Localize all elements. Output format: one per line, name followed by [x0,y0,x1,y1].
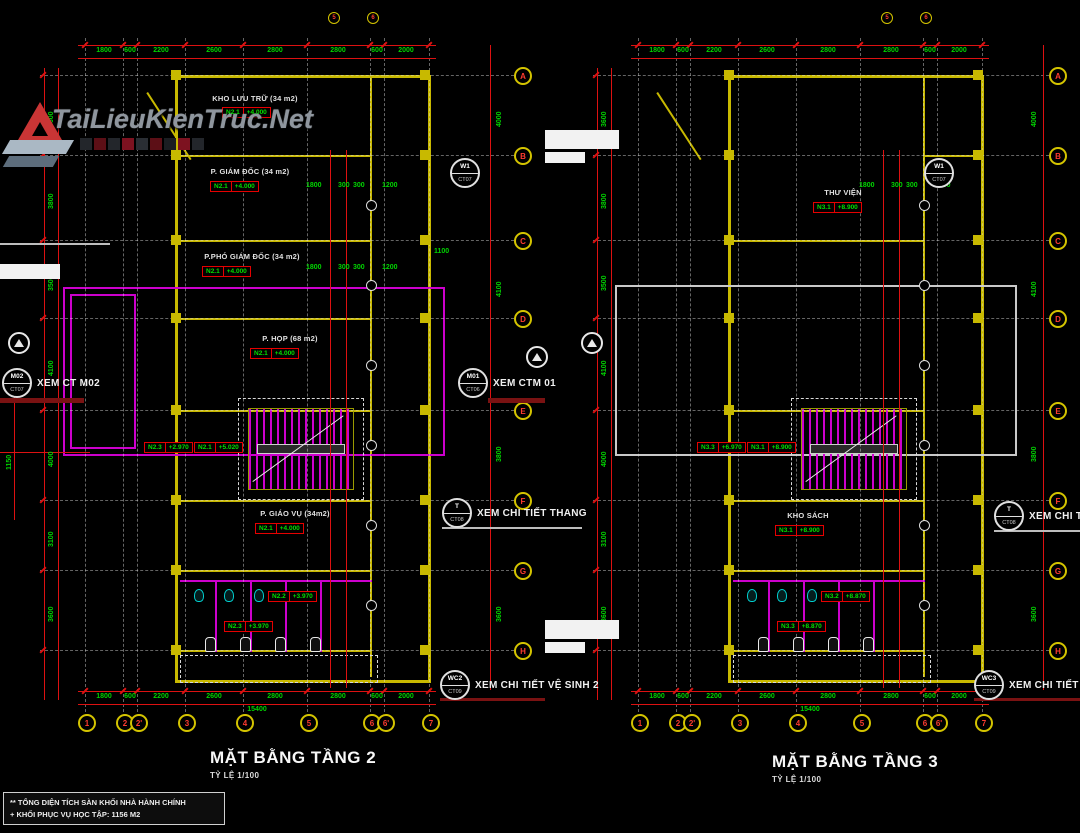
column-section [171,70,181,80]
grid-bubble-col: 2' [130,714,148,732]
watermark-logo-hole [32,122,48,136]
elevation-tag: N2.1+4.000 [210,181,259,192]
grid-bubble-col: 7 [975,714,993,732]
dim-line [78,45,436,46]
grid-line [40,570,514,571]
callout-stair-detail: T CT08 XEM CHI TIẾT THANG [442,498,587,528]
dim-label: 2800 [816,47,840,54]
dim-label: 1200 [382,182,398,189]
detail-tag-top: W1 [452,160,478,174]
dim-label: 3800 [601,193,608,209]
door-tag-icon [366,440,377,451]
column-section [420,565,430,575]
grid-line [307,38,308,712]
grid-line [40,240,514,241]
grid-bubble-row: C [1049,232,1067,250]
column-section [420,405,430,415]
plan-scale: TỶ LỆ 1/100 [772,775,938,784]
dim-line [631,691,989,692]
column-section [973,235,983,245]
watermark: TaiLieuKienTruc.Net [6,96,276,176]
door-tag-icon [919,600,930,611]
dim-line [1043,45,1044,690]
wc-elevation-tag: N2.2+3.970 [268,591,317,602]
stair-elevation-tag: N3.1+8.900 [747,442,796,453]
room-label-pho-giam-doc: P.PHÓ GIÁM ĐỐC (34 m2) [172,252,332,261]
dim-label: 3800 [48,193,55,209]
grid-bubble-col: 4 [236,714,254,732]
wc-elevation-tag: N2.3+3.970 [224,621,273,632]
staircase [248,408,354,490]
door-tag-icon [919,280,930,291]
grid-line [40,75,514,76]
column-section [724,70,734,80]
grid-bubble-row: A [1049,67,1067,85]
room-label-kho-sach: KHO SÁCH [748,511,868,520]
dim-line [899,150,900,688]
grid-bubble-col: 6' [377,714,395,732]
dim-label: 4100 [496,281,503,297]
callout-m02: M02 CT07 XEM CT M02 [2,368,100,398]
column-section [171,495,181,505]
callout-label: XEM CT M02 [37,378,100,389]
room-label-giao-vu: P. GIÁO VỤ (34m2) [230,509,360,518]
dim-label: 600 [118,693,142,700]
dim-label: 2800 [263,47,287,54]
dim-label: 1800 [306,264,322,271]
grid-bubble-row: G [514,562,532,580]
dim-label: 3800 [496,446,503,462]
grid-bubble-col: 5 [853,714,871,732]
dim-line [883,150,884,688]
room-label-thu-vien: THƯ VIỆN [788,188,898,197]
wc-partition [180,580,372,582]
toilet-icon [205,637,216,652]
urinal-icon [194,589,204,602]
callout-wc3: WC3 CT09 XEM CHI TIẾT VỆ SINH 3 [974,670,1080,700]
level-tag: N3.1 [748,443,768,452]
dim-label: 1100 [434,248,449,255]
elevation-tag: N2.1+4.000 [202,266,251,277]
grid-bubble-row: D [514,310,532,328]
section-marker [581,332,603,354]
section-marker [526,346,548,368]
dim-label: 2200 [149,693,173,700]
column-section [724,565,734,575]
staircase [801,408,907,490]
detail-tag-icon: M02 CT07 [2,368,32,398]
callout-stair-detail: T CT08 XEM CHI TIẾT THANG [994,501,1080,531]
room-label-hop: P. HỌP (68 m2) [225,334,355,343]
elevation-tag: N3.1+8.900 [813,202,862,213]
callout-label: XEM CHI TIẾT VỆ SINH 2 [475,680,599,691]
dim-line [78,704,436,705]
detail-tag-bottom: CT06 [460,384,486,396]
dim-label: 4100 [601,360,608,376]
grid-bubble-row: H [514,642,532,660]
dim-label: 4000 [496,111,503,127]
dim-label: 600 [118,47,142,54]
urinal-icon [747,589,757,602]
grid-line [690,38,691,712]
dim-label: 1800 [306,182,322,189]
dim-label: 3100 [48,531,55,547]
column-section [420,70,430,80]
note-line-2: + KHỐI PHỤC VỤ HỌC TẬP: 1156 M2 [10,809,218,821]
dim-line [631,45,989,46]
redaction-bar [545,642,585,653]
grid-bubble-row: E [514,402,532,420]
grid-bubble-row: C [514,232,532,250]
dim-label: 300 [353,182,365,189]
grid-line [40,410,514,411]
watermark-wedge [3,156,59,167]
dim-label: 2600 [202,47,226,54]
dim-label: 2200 [702,693,726,700]
dim-label: 4100 [1031,281,1038,297]
column-section [973,150,983,160]
level-tag: N3.2 [822,592,842,601]
level-tag: N2.1 [203,267,223,276]
door-tag-icon [366,600,377,611]
column-section [724,645,734,655]
elevation-value: +5.020 [215,443,242,452]
elevation-value: +8.900 [834,203,861,212]
grid-line [40,318,514,319]
column-section [171,565,181,575]
wc-elevation-tag: N3.3+8.870 [777,621,826,632]
detail-tag-top: M02 [4,370,30,384]
callout-label: XEM CHI TIẾT THANG [1029,511,1080,522]
grid-bubble-col: 3 [178,714,196,732]
column-section [171,645,181,655]
column-section [724,495,734,505]
detail-tag-bottom: CT07 [926,174,952,186]
door-tag-icon [919,520,930,531]
dim-label: 600 [918,47,942,54]
grid-bubble-row: B [1049,147,1067,165]
detail-tag-top: WC3 [976,672,1002,686]
grid-bubble-col: 3 [731,714,749,732]
dim-label: 2800 [879,693,903,700]
level-tag: N3.3 [778,622,798,631]
grid-bubble-col: 1 [78,714,96,732]
dim-label: 2800 [879,47,903,54]
dim-label: 4000 [601,451,608,467]
stair-elevation-tag: N3.3+6.970 [697,442,746,453]
grid-bubble-row: G [1049,562,1067,580]
detail-tag-top: WC2 [442,672,468,686]
level-tag: N3.3 [698,443,718,452]
grid-line [860,38,861,712]
detail-tag-bottom: CT08 [996,517,1022,529]
toilet-icon [828,637,839,652]
plan-title: MẶT BẰNG TẦNG 3 [772,752,938,772]
column-section [973,565,983,575]
elevation-tag: N2.1+4.000 [250,348,299,359]
dim-label: 600 [671,693,695,700]
dim-label: 2600 [202,693,226,700]
dim-label: 2000 [947,47,971,54]
canopy-dashed-outline [180,655,378,683]
grid-bubble-top: 6 [920,12,932,24]
area-note-box: ** TỔNG DIỆN TÍCH SÀN KHỐI NHÀ HÀNH CHÍN… [3,792,225,825]
grid-line [676,38,677,712]
elevation-tag: N2.1+4.000 [255,523,304,534]
elevation-tag: N3.1+8.900 [775,525,824,536]
door-tag-icon [919,440,930,451]
wc-elevation-tag: N3.2+8.870 [821,591,870,602]
redaction-bar [545,620,619,639]
elevation-value: +4.000 [276,524,303,533]
watermark-square [178,138,190,150]
dim-label: 2000 [394,693,418,700]
watermark-squares [80,138,204,150]
grid-line [796,38,797,712]
grid-bubble-col: 4 [789,714,807,732]
stair-elevation-tag: N2.1+5.020 [194,442,243,453]
dim-line [611,68,612,700]
watermark-square [94,138,106,150]
dim-label: 1200 [382,264,398,271]
column-section [171,235,181,245]
watermark-square [136,138,148,150]
dim-label: 2800 [263,693,287,700]
dim-total: 15400 [788,706,832,713]
grid-bubble-row: D [1049,310,1067,328]
level-tag: N2.1 [251,349,271,358]
door-tag-icon [366,520,377,531]
detail-tag-bottom: CT08 [444,514,470,526]
dim-label: 300 [353,264,365,271]
dim-label: 1800 [645,47,669,54]
redaction-bar [545,152,585,163]
dim-label: 600 [365,47,389,54]
elevation-value: +4.000 [231,182,258,191]
door-tag-icon [366,200,377,211]
callout-label: XEM CHI TIẾT THANG [477,508,587,519]
column-section [724,405,734,415]
callout-label: XEM CTM 01 [493,378,556,389]
elevation-value: +3.970 [289,592,316,601]
plan-title: MẶT BẰNG TẦNG 2 [210,748,376,768]
dim-label: 2200 [149,47,173,54]
section-marker [8,332,30,354]
dim-label: 3100 [601,531,608,547]
dim-label: 1800 [92,47,116,54]
watermark-square [108,138,120,150]
grid-bubble-top: 5 [881,12,893,24]
grid-bubble-row: H [1049,642,1067,660]
grid-bubble-col: 7 [422,714,440,732]
column-section [420,313,430,323]
dim-label: 3600 [601,111,608,127]
detail-tag-icon: W1 CT07 [450,158,480,188]
dim-label: 4000 [1031,111,1038,127]
floor3-plan: THƯ VIỆN N3.1+8.900 KHO SÁCH N3.1+8.900 … [553,0,1080,770]
grid-line [429,38,430,712]
level-tag: N2.3 [225,622,245,631]
level-tag: N2.2 [269,592,289,601]
detail-tag-icon: M01 CT06 [458,368,488,398]
elevation-value: +8.900 [796,526,823,535]
callout-wc2: WC2 CT09 XEM CHI TIẾT VỆ SINH 2 [440,670,599,700]
urinal-icon [224,589,234,602]
door-tag-icon [366,280,377,291]
redaction-line [0,243,110,245]
detail-tag-icon: WC3 CT09 [974,670,1004,700]
watermark-square [150,138,162,150]
elevation-value: +2.970 [165,443,192,452]
detail-tag-icon: T CT08 [442,498,472,528]
dim-line [597,68,598,700]
stair-elevation-tag: N2.3+2.970 [144,442,193,453]
dim-label: 300 [338,264,350,271]
floor3-title-block: MẶT BẰNG TẦNG 3 TỶ LỆ 1/100 [772,752,938,784]
detail-tag-bottom: CT07 [4,384,30,396]
toilet-icon [240,637,251,652]
detail-tag-bottom: CT09 [976,686,1002,698]
watermark-wedge [2,140,74,154]
elevation-value: +8.900 [768,443,795,452]
detail-tag-bottom: CT09 [442,686,468,698]
detail-tag-top: W1 [926,160,952,174]
callout-underline [488,398,545,403]
column-section [724,313,734,323]
dim-line [631,704,989,705]
detail-tag-icon: W1 CT07 [924,158,954,188]
toilet-icon [793,637,804,652]
dim-total: 15400 [235,706,279,713]
callout-w1: W1 CT07 [924,158,954,188]
door-tag-icon [366,360,377,371]
redaction-bar [0,264,60,279]
grid-bubble-row: B [514,147,532,165]
dim-line [78,691,436,692]
urinal-icon [807,589,817,602]
callout-underline [0,398,84,403]
detail-tag-top: M01 [460,370,486,384]
door-tag-icon [919,360,930,371]
column-section [724,235,734,245]
canopy-dashed-outline [733,655,931,683]
dim-label: 1150 [6,455,13,470]
elevation-value: +3.970 [245,622,272,631]
callout-w1: W1 CT07 [450,158,480,188]
detail-tag-top: T [444,500,470,514]
toilet-icon [275,637,286,652]
dim-line [330,150,331,688]
column-section [724,150,734,160]
cad-drawing-canvas: { "watermark": { "brand": "TaiLieuKienTr… [0,0,1080,833]
dim-label: 4000 [48,451,55,467]
watermark-square [192,138,204,150]
dim-label: 3600 [48,606,55,622]
dim-label: 2600 [755,47,779,54]
grid-bubble-row: A [514,67,532,85]
dim-label: 2800 [326,47,350,54]
elevation-value: +6.970 [718,443,745,452]
grid-line [937,38,938,712]
dim-label: 2800 [816,693,840,700]
dim-label: 600 [671,47,695,54]
floor2-title-block: MẶT BẰNG TẦNG 2 TỶ LỆ 1/100 [210,748,376,780]
grid-bubble-col: 2' [683,714,701,732]
dim-label: 300 [338,182,350,189]
column-section [171,313,181,323]
dim-label: 3500 [601,275,608,291]
column-section [973,405,983,415]
level-tag: N2.1 [195,443,215,452]
dim-label: 2800 [326,693,350,700]
grid-bubble-top: 6 [367,12,379,24]
grid-bubble-top: 5 [328,12,340,24]
note-line-1: ** TỔNG DIỆN TÍCH SÀN KHỐI NHÀ HÀNH CHÍN… [10,797,218,809]
dim-line [631,58,989,59]
grid-bubble-col: 1 [631,714,649,732]
grid-bubble-col: 6' [930,714,948,732]
dim-line [14,392,15,520]
callout-label: XEM CHI TIẾT VỆ SINH 3 [1009,680,1080,691]
urinal-icon [254,589,264,602]
grid-bubble-row: E [1049,402,1067,420]
dim-label: 3600 [1031,606,1038,622]
dim-label: 2000 [947,693,971,700]
watermark-square [122,138,134,150]
wc-partition [733,580,925,582]
watermark-square [80,138,92,150]
dim-label: 2000 [394,47,418,54]
level-tag: N2.3 [145,443,165,452]
urinal-icon [777,589,787,602]
toilet-icon [863,637,874,652]
toilet-icon [758,637,769,652]
column-section [420,645,430,655]
watermark-square [164,138,176,150]
column-section [420,495,430,505]
column-section [171,405,181,415]
elevation-value: +4.000 [223,267,250,276]
dim-label: 600 [918,693,942,700]
detail-tag-icon: T CT08 [994,501,1024,531]
column-section [973,70,983,80]
level-tag: N2.1 [211,182,231,191]
column-section [420,150,430,160]
elevation-value: +8.870 [798,622,825,631]
dim-line [78,58,436,59]
level-tag: N2.1 [256,524,276,533]
redaction-bar [545,130,619,149]
grid-line [738,38,739,712]
elevation-value: +4.000 [271,349,298,358]
column-section [420,235,430,245]
toilet-icon [310,637,321,652]
dim-label: 1800 [92,693,116,700]
detail-tag-icon: WC2 CT09 [440,670,470,700]
dim-label: 3800 [1031,446,1038,462]
detail-tag-top: T [996,503,1022,517]
column-section [973,313,983,323]
grid-bubble-col: 5 [300,714,318,732]
dim-label: 3600 [496,606,503,622]
detail-tag-bottom: CT07 [452,174,478,186]
plan-scale: TỶ LỆ 1/100 [210,771,376,780]
column-section [973,495,983,505]
grid-line [638,38,639,712]
dim-label: 600 [365,693,389,700]
dim-line [346,150,347,688]
grid-line [384,38,385,712]
